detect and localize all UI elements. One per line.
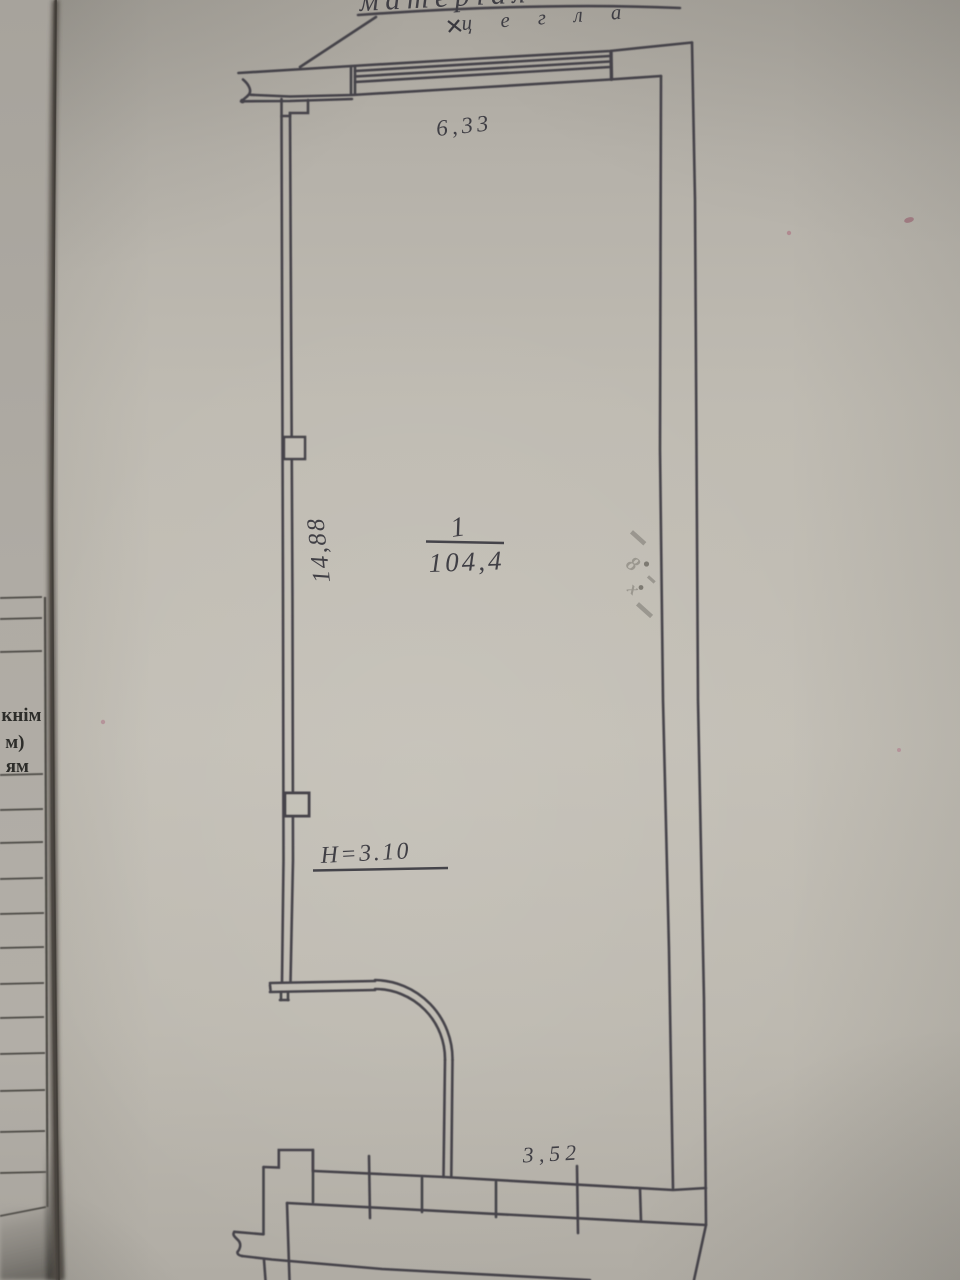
svg-text:8: 8 (621, 551, 645, 576)
svg-text:1: 1 (449, 511, 467, 544)
svg-text:14,88: 14,88 (302, 515, 336, 584)
svg-text:3,52: 3,52 (521, 1139, 582, 1167)
svg-text:ям: ям (6, 756, 29, 777)
svg-text:H=3.10: H=3.10 (319, 838, 412, 869)
svg-text:104,4: 104,4 (428, 545, 505, 578)
svg-text:кнім: кнім (1, 705, 41, 726)
svg-text:м): м) (5, 732, 24, 753)
svg-text:6,33: 6,33 (435, 110, 494, 141)
